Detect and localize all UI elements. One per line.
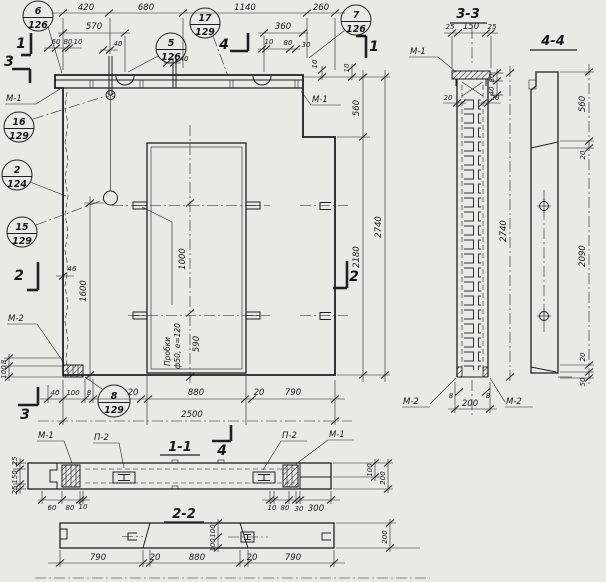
drawing-sheet: 420 680 1140 260 570 360 60 80 10 40 40 … <box>0 0 606 582</box>
dim-420: 420 <box>78 3 94 13</box>
dim-680: 680 <box>138 3 154 13</box>
s33-hollow-cores <box>464 98 481 370</box>
cut-1-top-right: 1 <box>356 36 379 58</box>
dim-10-rot: 10 <box>311 59 319 68</box>
svg-text:1: 1 <box>16 36 26 52</box>
main-elevation <box>55 56 348 377</box>
dim-2740: 2740 <box>374 216 384 238</box>
dim-100-s22a: 100 <box>209 524 217 538</box>
cut-3-top-left: 3 <box>4 54 30 83</box>
s33-m2-block-left <box>457 367 462 377</box>
dim-60-s11: 60 <box>48 504 57 512</box>
panel-outline <box>55 75 335 375</box>
balloon-5: 5 126 <box>128 33 186 72</box>
panel-working-drawing: 420 680 1140 260 570 360 60 80 10 40 40 … <box>0 0 606 582</box>
plug-circle <box>104 191 118 205</box>
label-m2-main: М-2 <box>8 314 24 324</box>
s44-body <box>531 72 558 373</box>
opening-tabs <box>133 202 260 319</box>
svg-text:3: 3 <box>20 407 30 423</box>
dim-20-s44a: 20 <box>579 150 587 159</box>
s33-top-plate <box>452 71 490 79</box>
top-rod-left <box>109 56 112 191</box>
dim-790: 790 <box>285 388 301 398</box>
dim-200-s22: 200 <box>381 530 389 544</box>
dim-1140: 1140 <box>234 3 256 13</box>
cut-2-left: 2 <box>14 262 38 290</box>
section-3-3: 3-3 М-1 25 150 25 80 40 20 20 2740 М-2 М… <box>402 7 533 416</box>
dim-590: 590 <box>192 336 202 352</box>
dim-80-s11b: 80 <box>281 504 290 512</box>
dim-8-s33l: 8 <box>449 392 454 400</box>
label-p2-s11l: П-2 <box>94 433 109 443</box>
s44-joint-line <box>531 142 558 148</box>
dim-80-s11: 80 <box>66 504 75 512</box>
s11-edge-ticks <box>172 460 224 489</box>
dim-200-s11: 200 <box>379 471 387 485</box>
dim-10c: 10 <box>343 63 351 72</box>
dim-25-s11a: 25 <box>11 456 19 465</box>
s11-keyway <box>50 463 57 489</box>
dim-20-s33l: 20 <box>444 94 453 102</box>
main-dimensions: 420 680 1140 260 570 360 60 80 10 40 40 … <box>0 3 390 425</box>
dim-260: 260 <box>313 3 329 13</box>
svg-text:15: 15 <box>15 222 29 233</box>
section-3-3-title: 3-3 <box>456 7 480 22</box>
dim-20-s44b: 20 <box>579 352 587 361</box>
cut-1-top-left: 1 <box>16 33 31 55</box>
dim-20-s22b: 20 <box>247 553 258 563</box>
svg-text:7: 7 <box>353 10 360 21</box>
dim-560-s44: 560 <box>578 96 588 112</box>
svg-text:2: 2 <box>14 165 21 176</box>
svg-text:126: 126 <box>28 20 48 31</box>
cut-4-top: 4 <box>218 33 248 53</box>
dim-570: 570 <box>86 22 102 32</box>
label-p2-s11r: П-2 <box>282 431 297 441</box>
dim-20b: 20 <box>254 388 265 398</box>
svg-text:1: 1 <box>369 39 379 55</box>
svg-text:6: 6 <box>35 6 42 17</box>
dim-8-edge: 8 <box>0 359 8 364</box>
svg-text:3: 3 <box>4 54 14 70</box>
note-plugs-2: ф50, е=120 <box>173 323 182 369</box>
dim-25a: 25 <box>446 23 455 31</box>
label-m1-s11l: М-1 <box>38 431 54 441</box>
dim-20-s33r: 20 <box>491 94 500 102</box>
dim-300-s11: 300 <box>308 504 324 514</box>
dim-46: 46 <box>68 265 77 273</box>
dim-30-s11: 30 <box>295 505 304 513</box>
dim-50-s44: 50 <box>579 377 587 386</box>
dim-40a: 40 <box>114 40 123 48</box>
label-m1-topleft: М-1 <box>6 94 22 104</box>
svg-text:5: 5 <box>168 38 175 49</box>
svg-text:2: 2 <box>14 268 24 284</box>
dim-10b: 10 <box>265 38 274 46</box>
s22-keyway <box>60 529 67 539</box>
dim-100-edge: 100 <box>0 365 8 379</box>
dim-790-s22a: 790 <box>90 553 106 563</box>
dim-20-s22a: 20 <box>150 553 161 563</box>
s22-plug-left <box>122 533 143 540</box>
dim-100b: 100 <box>66 389 80 397</box>
left-break-line <box>65 92 68 372</box>
balloon-8: 8 129 <box>85 377 130 417</box>
svg-text:2: 2 <box>349 269 359 285</box>
dim-2740-s33: 2740 <box>499 220 509 242</box>
dim-80: 80 <box>64 38 73 46</box>
extension-lines <box>4 18 390 425</box>
dim-100-s11: 100 <box>366 463 374 477</box>
s22-plug-mid <box>228 532 268 542</box>
s22-joint-left <box>143 523 150 548</box>
section-4-4: 4-4 560 20 2090 20 50 <box>529 34 594 386</box>
s11-m1-block-right <box>283 465 298 487</box>
s22-bar <box>60 523 334 548</box>
s33-anchor-cross <box>462 82 483 96</box>
section-2-2: 2-2 100 100 200 790 20 880 20 790 <box>35 507 430 578</box>
dim-150-s11: 150 <box>11 470 19 484</box>
svg-text:4: 4 <box>216 443 227 459</box>
dim-2090: 2090 <box>578 245 588 267</box>
svg-text:4: 4 <box>218 37 229 53</box>
s22-right-ext <box>336 519 420 552</box>
dim-790-s22b: 790 <box>285 553 301 563</box>
dim-1600: 1600 <box>79 280 89 302</box>
dim-25b: 25 <box>488 23 497 31</box>
section-1-1-title: 1-1 <box>168 440 192 455</box>
dim-8b: 8 <box>87 389 92 397</box>
note-plugs-1: Пробки <box>163 337 172 366</box>
svg-text:129: 129 <box>195 27 215 38</box>
dim-2500: 2500 <box>181 410 203 420</box>
s11-p2-right <box>253 472 275 483</box>
door-opening-inner <box>151 147 242 369</box>
s11-p2-left <box>113 472 135 483</box>
label-m1-topright: М-1 <box>312 95 328 105</box>
s44-bottom-bevel <box>531 367 556 372</box>
svg-text:8: 8 <box>111 391 118 402</box>
dim-80b: 80 <box>284 39 293 47</box>
dim-10-s11b: 10 <box>268 504 277 512</box>
svg-text:129: 129 <box>9 131 29 142</box>
svg-text:17: 17 <box>198 13 212 24</box>
cut-4-mid: 4 <box>212 425 231 459</box>
dim-10-s11: 10 <box>79 503 88 511</box>
dim-2180: 2180 <box>352 246 362 268</box>
label-m2-s33r: М-2 <box>506 397 522 407</box>
dim-880: 880 <box>188 388 204 398</box>
dim-25-s11b: 25 <box>11 485 19 494</box>
svg-text:126: 126 <box>346 24 366 35</box>
svg-text:129: 129 <box>12 236 32 247</box>
cut-3-bottom-left: 3 <box>18 387 38 423</box>
svg-text:16: 16 <box>12 117 26 128</box>
dim-1000: 1000 <box>178 248 188 270</box>
section-2-2-title: 2-2 <box>172 507 196 522</box>
s33-m2-block-right <box>483 367 488 377</box>
label-m2-s33l: М-2 <box>403 397 419 407</box>
s22-plug-right <box>322 533 331 540</box>
section-4-4-title: 4-4 <box>540 34 565 49</box>
label-m1-s11r: М-1 <box>329 430 345 440</box>
dim-200-s33: 200 <box>462 399 478 409</box>
dim-60: 60 <box>52 38 61 46</box>
dim-360: 360 <box>275 22 291 32</box>
svg-text:129: 129 <box>104 405 124 416</box>
balloon-6: 6 126 <box>23 1 62 73</box>
dim-30: 30 <box>302 41 311 49</box>
dim-100-s22b: 100 <box>209 538 217 552</box>
label-m1-s33: М-1 <box>410 47 426 57</box>
dim-560: 560 <box>352 100 362 116</box>
dim-80-s33: 80 <box>488 73 496 82</box>
embed-labels-main: М-1 М-1 М-2 <box>5 89 341 363</box>
balloon-2: 2 124 <box>2 160 66 196</box>
section-1-1: 1-1 М-1 П-2 П-2 М-1 25 150 25 <box>11 430 393 514</box>
dim-40c: 40 <box>51 389 60 397</box>
right-bracket-marks <box>320 203 331 320</box>
dim-10: 10 <box>74 38 83 46</box>
svg-text:124: 124 <box>7 179 27 190</box>
dim-880-s22: 880 <box>189 553 205 563</box>
svg-text:126: 126 <box>161 52 181 63</box>
balloon-15: 15 129 <box>7 200 103 247</box>
dim-150: 150 <box>463 22 479 32</box>
